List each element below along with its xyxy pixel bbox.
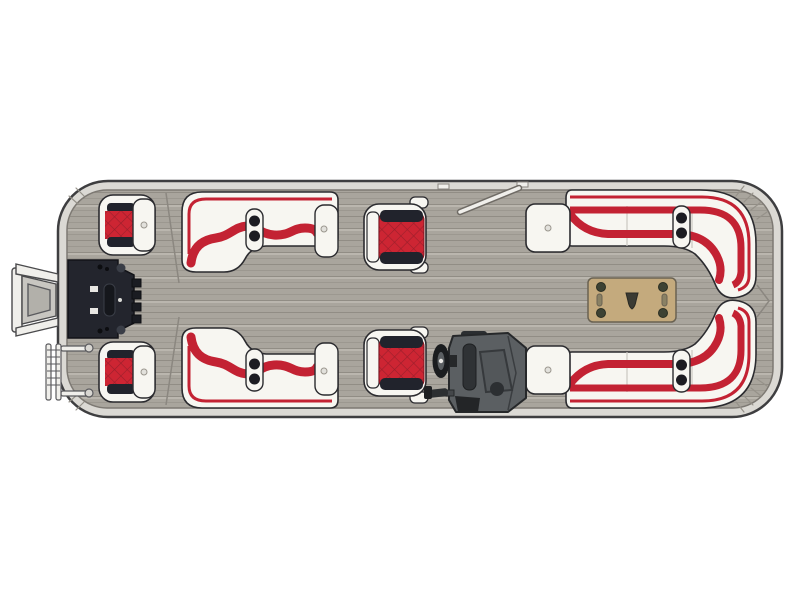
captain-chair-helm: Helm captain chair	[364, 327, 428, 403]
floorplan-svg: Overhead floor plan diagram of a pontoon…	[0, 0, 800, 600]
rear-fishing-seat-starboard: Rear fishing seat (starboard)	[99, 342, 155, 402]
chaise-backrest-port: Port chaise backrest	[526, 204, 570, 252]
cupholder-armrest	[246, 349, 263, 391]
pontoon-floorplan-image: Overhead floor plan diagram of a pontoon…	[0, 0, 800, 600]
cupholder-armrest	[673, 206, 690, 248]
outboard-motor: Outboard motor	[12, 264, 58, 336]
cupholder-armrest	[246, 209, 263, 251]
rear-fishing-seat-port: Rear fishing seat (port)	[99, 195, 155, 255]
cupholder-armrest	[673, 350, 690, 392]
cocktail-table: Cocktail table with emblem	[588, 278, 676, 322]
captain-chair-companion: Companion captain chair	[364, 197, 428, 273]
chaise-backrest-starboard: Starboard chaise backrest	[526, 346, 570, 394]
